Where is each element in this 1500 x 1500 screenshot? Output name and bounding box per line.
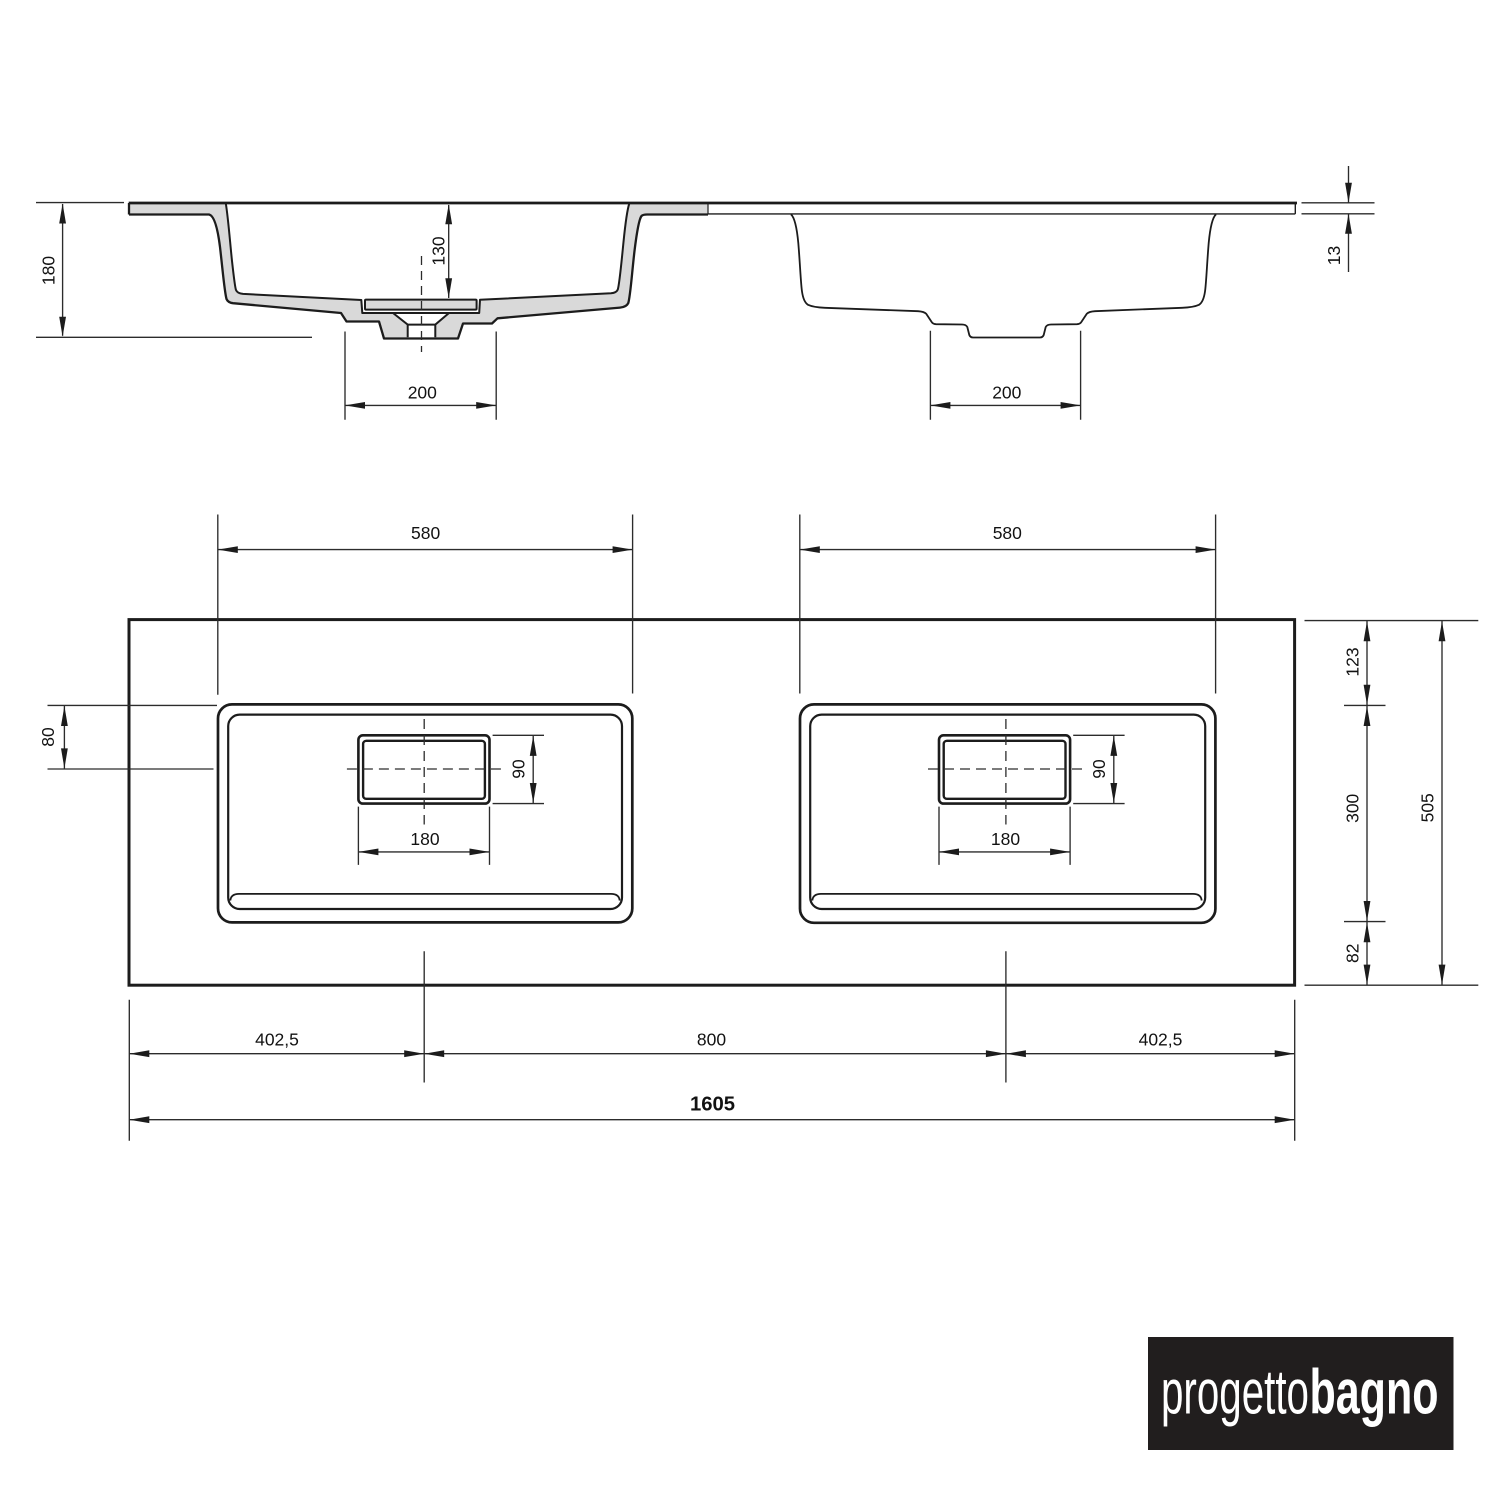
svg-text:200: 200 <box>408 382 437 402</box>
svg-text:13: 13 <box>1324 246 1344 265</box>
svg-text:90: 90 <box>509 759 529 779</box>
svg-text:bagno: bagno <box>1310 1358 1439 1428</box>
svg-text:130: 130 <box>429 236 449 265</box>
svg-text:180: 180 <box>39 256 59 285</box>
svg-text:402,5: 402,5 <box>1139 1029 1183 1049</box>
svg-text:progetto: progetto <box>1161 1358 1309 1428</box>
svg-text:90: 90 <box>1089 759 1109 779</box>
svg-text:402,5: 402,5 <box>255 1029 299 1049</box>
svg-text:82: 82 <box>1342 943 1362 962</box>
svg-text:800: 800 <box>697 1029 726 1049</box>
svg-text:580: 580 <box>993 523 1022 543</box>
svg-text:123: 123 <box>1342 647 1362 676</box>
svg-text:200: 200 <box>992 382 1021 402</box>
svg-text:580: 580 <box>411 523 440 543</box>
svg-text:300: 300 <box>1342 793 1362 822</box>
svg-text:1605: 1605 <box>690 1094 735 1116</box>
svg-text:180: 180 <box>410 829 439 849</box>
svg-text:80: 80 <box>38 727 58 747</box>
svg-text:505: 505 <box>1417 793 1437 822</box>
svg-text:180: 180 <box>991 829 1020 849</box>
